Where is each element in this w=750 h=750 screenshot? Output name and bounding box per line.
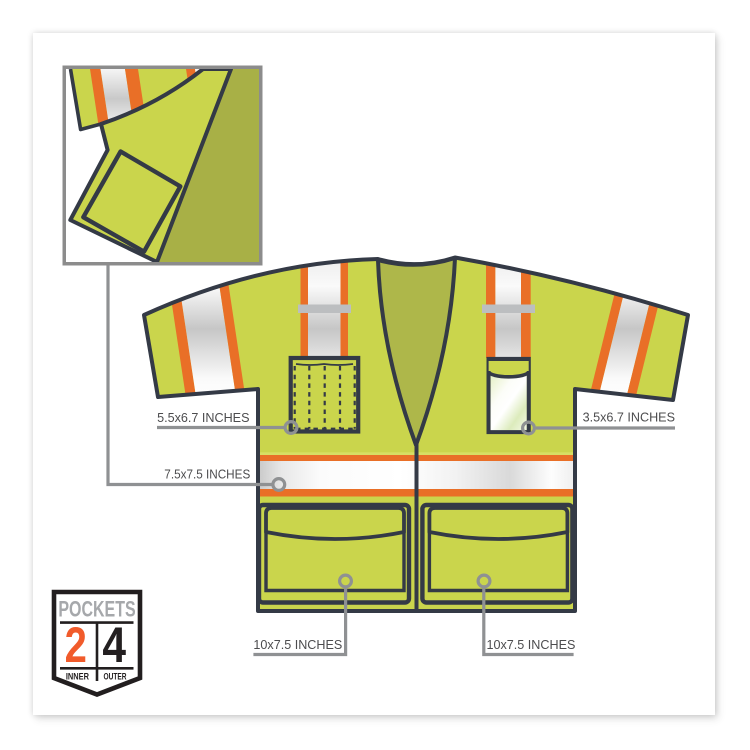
- svg-text:3.5x6.7 INCHES: 3.5x6.7 INCHES: [583, 411, 675, 425]
- svg-text:7.5x7.5 INCHES: 7.5x7.5 INCHES: [164, 467, 250, 481]
- svg-text:OUTER: OUTER: [103, 671, 126, 681]
- svg-text:5.5x6.7 INCHES: 5.5x6.7 INCHES: [157, 411, 249, 425]
- svg-text:2: 2: [65, 617, 87, 673]
- svg-text:10x7.5 INCHES: 10x7.5 INCHES: [487, 638, 576, 652]
- svg-text:4: 4: [102, 617, 126, 673]
- svg-text:10x7.5 INCHES: 10x7.5 INCHES: [253, 638, 342, 652]
- svg-text:INNER: INNER: [66, 671, 89, 682]
